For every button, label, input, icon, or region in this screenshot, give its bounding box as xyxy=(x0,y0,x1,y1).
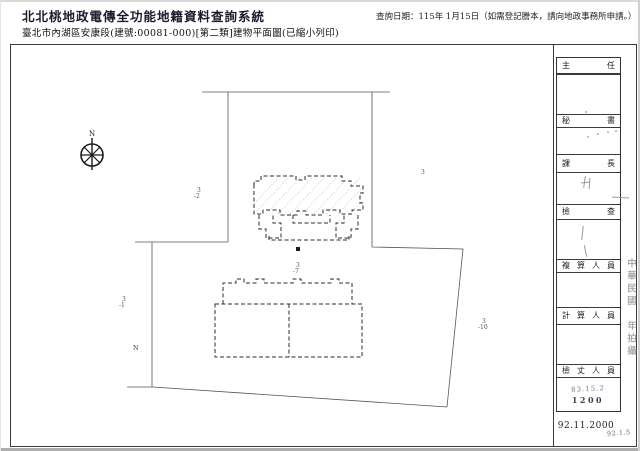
page-edge-top xyxy=(0,0,640,2)
approval-table: 主 任 秘 書 課 長 檢 查 複 算 人 員 計 算 人 員 檢 丈 人 員 … xyxy=(556,57,621,412)
panel-row-inspection: 檢 查 xyxy=(557,205,620,220)
scale-stamp: 1200 xyxy=(563,395,613,405)
building-upper-outline xyxy=(254,176,363,240)
pen-stroke xyxy=(581,226,583,240)
panel-row-section-chief: 課 長 xyxy=(557,155,620,173)
pen-stroke xyxy=(589,178,591,189)
document-subtitle: 臺北市內湖區安康段(建號:00081-000)[第二類]建物平面圖(已縮小列印) xyxy=(22,25,339,39)
panel-row-director: 主 任 xyxy=(557,58,620,75)
panel-row-recheck-staff: 複 算 人 員 xyxy=(557,260,620,273)
panel-row-secretary: 秘 書 xyxy=(557,115,620,128)
pen-mark xyxy=(597,133,599,135)
map-panel-divider xyxy=(553,44,554,447)
panel-cell-secretary xyxy=(557,128,620,155)
pen-mark xyxy=(585,111,587,113)
query-date: 查詢日期：115年 1月15日（如需登記謄本，請向地政事務所申請。） xyxy=(376,10,636,22)
panel-row-inspection-label: 檢 查 xyxy=(562,207,615,216)
panel-row-section-chief-label: 課 長 xyxy=(562,159,615,168)
survey-marker xyxy=(296,247,300,251)
pen-mark xyxy=(607,131,609,133)
panel-row-calc-staff: 計 算 人 員 xyxy=(557,308,620,325)
lot-label-n-mark: N xyxy=(133,344,139,352)
panel-cell-calc-staff xyxy=(557,325,620,365)
parcel-boundary xyxy=(127,92,463,407)
floor-plan-drawing: N 3 3 -2 3 -7 3 -1 3 -10 N xyxy=(10,44,553,447)
system-title: 北北桃地政電傳全功能地籍資料查詢系統 xyxy=(22,6,265,25)
panel-row-calc-staff-label: 計 算 人 員 xyxy=(562,311,615,320)
building-upper-hatch xyxy=(254,178,363,214)
pen-mark xyxy=(615,130,617,132)
panel-row-survey-staff-label: 檢 丈 人 員 xyxy=(562,366,615,375)
pen-stroke xyxy=(584,245,587,257)
pen-mark xyxy=(587,136,589,138)
panel-cell-section-chief xyxy=(557,173,620,205)
lot-label-3-10-sub: -10 xyxy=(478,324,488,331)
date-stamp: 83.15.2 xyxy=(560,384,616,395)
compass-icon xyxy=(81,138,103,170)
page-edge-left xyxy=(0,0,1,451)
panel-row-survey-staff: 檢 丈 人 員 xyxy=(557,365,620,378)
corner-mark: 92.1.5 xyxy=(607,428,631,438)
building-lower-outline xyxy=(215,279,362,357)
photo-note-vertical: 中華民國 年拍攝 xyxy=(622,258,637,390)
panel-cell-director xyxy=(557,75,620,115)
lot-label-3-7-sub: -7 xyxy=(293,268,299,275)
lot-label-3-2-sub: -2 xyxy=(194,193,200,200)
panel-row-recheck-staff-label: 複 算 人 員 xyxy=(562,261,615,270)
compass-north-label: N xyxy=(89,130,95,138)
panel-cell-recheck-staff xyxy=(557,273,620,308)
lot-label-3-1-sub: -1 xyxy=(119,302,125,309)
panel-cell-inspection xyxy=(557,220,620,260)
panel-row-secretary-label: 秘 書 xyxy=(562,116,615,125)
lot-labels: 3 3 -2 3 -7 3 -1 3 -10 N xyxy=(119,169,488,352)
panel-row-director-label: 主 任 xyxy=(562,61,615,70)
page: { "header": { "system_title": "北北桃地政電傳全功… xyxy=(0,0,640,451)
panel-cell-survey-staff: 83.15.2 1200 xyxy=(557,378,620,411)
lot-label-3: 3 xyxy=(421,169,425,176)
